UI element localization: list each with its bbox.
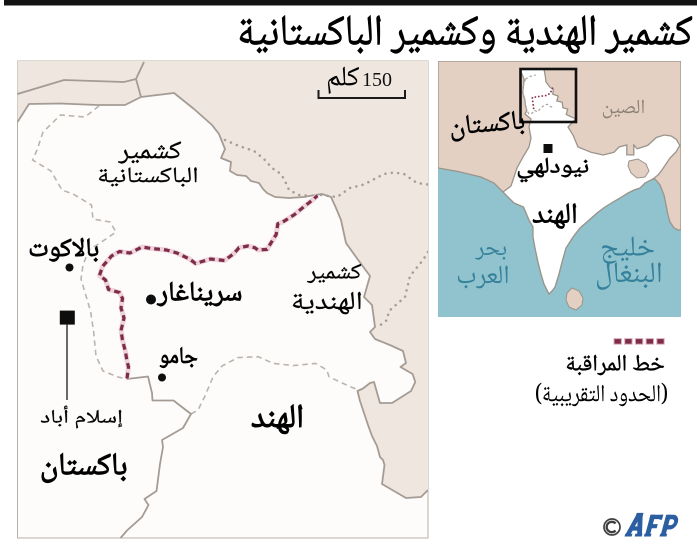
svg-text:150: 150	[362, 69, 392, 91]
